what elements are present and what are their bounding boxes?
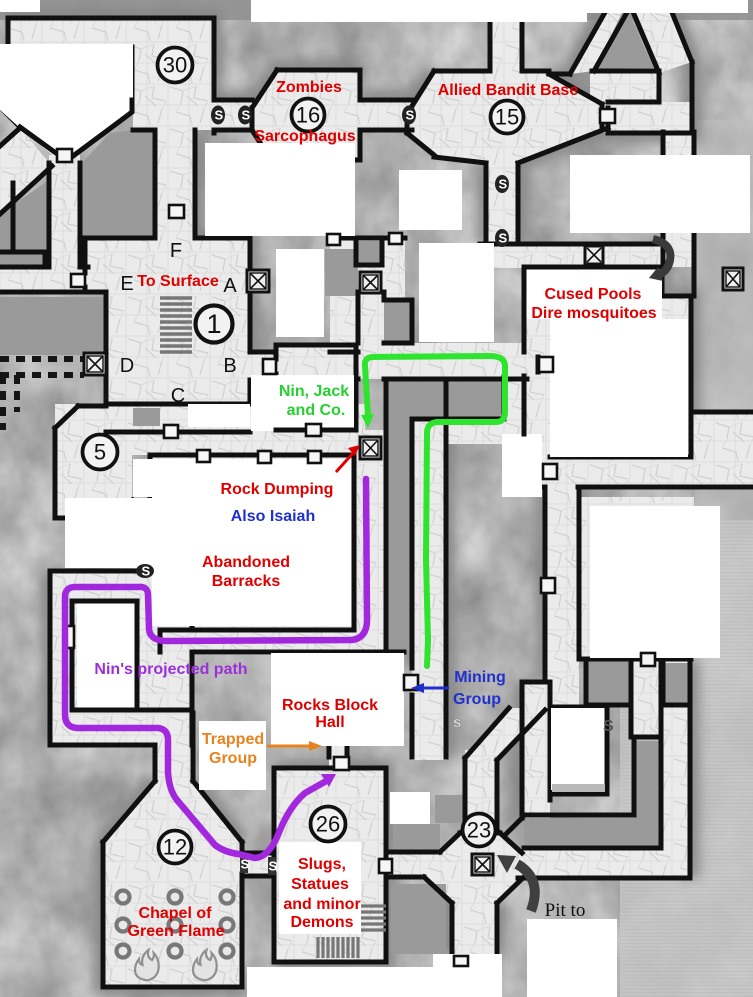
svg-text:Allied Bandit Base: Allied Bandit Base	[438, 82, 579, 99]
svg-text:16: 16	[296, 103, 320, 128]
svg-text:Barracks: Barracks	[212, 573, 281, 590]
svg-text:A: A	[223, 275, 237, 297]
svg-text:Trapped: Trapped	[202, 731, 264, 748]
svg-text:and minor: and minor	[283, 896, 360, 913]
svg-text:Chapel of: Chapel of	[139, 905, 213, 922]
svg-text:S: S	[242, 108, 251, 123]
svg-text:F: F	[170, 240, 182, 262]
svg-text:Statues: Statues	[291, 876, 349, 893]
svg-text:Cused Pools: Cused Pools	[545, 286, 642, 303]
svg-text:Group: Group	[209, 750, 257, 767]
svg-text:15: 15	[495, 105, 519, 130]
svg-text:C: C	[171, 385, 185, 407]
svg-text:Also Isaiah: Also Isaiah	[231, 508, 315, 525]
svg-text:S: S	[499, 177, 508, 192]
svg-text:Hall: Hall	[315, 714, 344, 731]
svg-text:Nin, Jack: Nin, Jack	[279, 383, 349, 400]
svg-text:Zombies: Zombies	[276, 79, 342, 96]
svg-text:5: 5	[94, 440, 106, 465]
svg-text:Abandoned: Abandoned	[202, 554, 290, 571]
svg-text:Sarcophagus: Sarcophagus	[254, 128, 355, 145]
svg-text:B: B	[223, 355, 236, 377]
svg-text:Green Flame: Green Flame	[128, 923, 225, 940]
svg-text:Slugs,: Slugs,	[298, 856, 346, 873]
svg-text:s: s	[453, 714, 461, 731]
svg-text:30: 30	[163, 53, 187, 78]
svg-text:S: S	[215, 108, 224, 123]
svg-text:Rocks Block: Rocks Block	[282, 697, 378, 714]
svg-text:12: 12	[163, 835, 187, 860]
svg-text:Rock Dumping: Rock Dumping	[221, 481, 334, 498]
svg-text:1: 1	[206, 309, 221, 339]
svg-text:D: D	[120, 355, 134, 377]
svg-text:23: 23	[467, 818, 491, 843]
svg-text:26: 26	[316, 812, 340, 837]
svg-text:Pit to: Pit to	[545, 900, 586, 921]
svg-text:S: S	[499, 231, 508, 246]
svg-text:S: S	[406, 108, 415, 123]
svg-text:S: S	[603, 718, 614, 735]
svg-text:Mining: Mining	[454, 669, 506, 686]
svg-text:S: S	[142, 564, 151, 579]
svg-text:Nin's projected path: Nin's projected path	[94, 661, 247, 678]
svg-text:Demons: Demons	[290, 914, 353, 931]
svg-text:E: E	[120, 273, 133, 295]
svg-text:Group: Group	[453, 691, 501, 708]
svg-text:and Co.: and Co.	[287, 402, 346, 419]
svg-text:Dire mosquitoes: Dire mosquitoes	[531, 305, 656, 322]
svg-text:To Surface: To Surface	[137, 273, 219, 290]
svg-text:S: S	[269, 859, 278, 874]
